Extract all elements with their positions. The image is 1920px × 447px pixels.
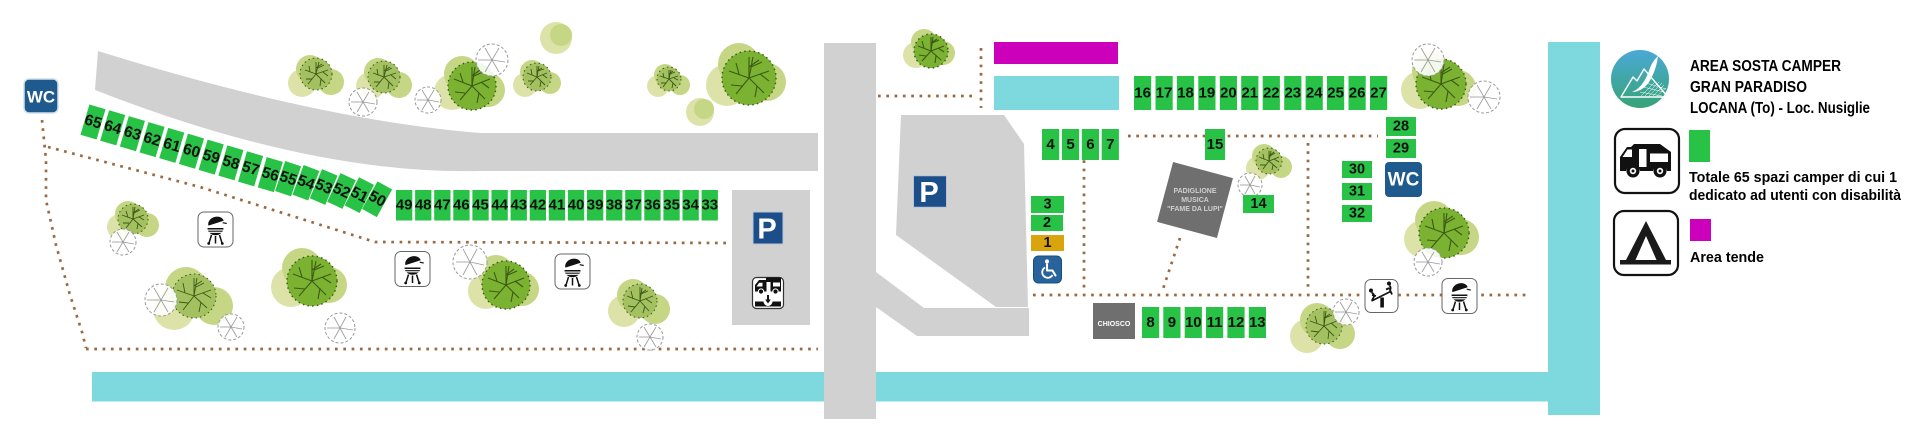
svg-text:CHIOSCO: CHIOSCO [1098,321,1131,328]
svg-text:48: 48 [415,197,432,214]
svg-text:46: 46 [453,197,470,214]
svg-text:8: 8 [1146,314,1154,331]
svg-text:47: 47 [434,197,451,214]
svg-text:19: 19 [1199,85,1216,102]
svg-text:"FAME DA LUPI": "FAME DA LUPI" [1167,206,1223,213]
svg-text:41: 41 [549,197,566,214]
svg-text:45: 45 [472,197,489,214]
svg-text:4: 4 [1046,136,1055,153]
svg-text:GRAN PARADISO: GRAN PARADISO [1690,79,1807,96]
svg-text:5: 5 [1066,136,1074,153]
svg-text:39: 39 [587,197,604,214]
svg-text:36: 36 [644,197,661,214]
svg-text:9: 9 [1168,314,1176,331]
svg-text:WC: WC [27,88,55,107]
svg-text:27: 27 [1370,85,1387,102]
svg-text:38: 38 [606,197,623,214]
svg-text:24: 24 [1306,85,1323,102]
svg-text:26: 26 [1349,85,1366,102]
svg-text:33: 33 [701,197,718,214]
svg-text:Totale 65 spazi camper di cui: Totale 65 spazi camper di cui 1 [1689,169,1897,186]
svg-text:18: 18 [1177,85,1194,102]
svg-text:29: 29 [1393,141,1409,157]
svg-text:7: 7 [1106,136,1114,153]
svg-text:40: 40 [568,197,585,214]
svg-text:17: 17 [1156,85,1173,102]
svg-text:12: 12 [1228,314,1245,331]
svg-text:14: 14 [1250,196,1266,212]
svg-text:32: 32 [1349,206,1365,222]
svg-text:1: 1 [1043,235,1051,251]
svg-text:20: 20 [1220,85,1237,102]
svg-text:P: P [919,177,938,209]
svg-text:43: 43 [510,197,527,214]
svg-text:11: 11 [1207,314,1223,331]
svg-text:34: 34 [682,197,699,214]
svg-text:21: 21 [1241,85,1258,102]
svg-text:Area tende: Area tende [1690,249,1764,266]
svg-text:13: 13 [1249,314,1266,331]
svg-text:3: 3 [1043,197,1051,213]
svg-text:MUSICA: MUSICA [1181,197,1209,204]
svg-text:49: 49 [396,197,413,214]
svg-text:28: 28 [1393,119,1409,135]
svg-text:10: 10 [1185,314,1202,331]
svg-text:P: P [757,214,776,246]
svg-text:23: 23 [1284,85,1301,102]
svg-text:35: 35 [663,197,680,214]
svg-text:15: 15 [1207,136,1224,153]
svg-text:AREA SOSTA CAMPER: AREA SOSTA CAMPER [1690,58,1841,75]
svg-text:44: 44 [491,197,508,214]
svg-text:PADIGLIONE: PADIGLIONE [1173,188,1216,195]
svg-text:6: 6 [1086,136,1094,153]
svg-text:22: 22 [1263,85,1280,102]
svg-text:LOCANA (To) - Loc. Nusiglie: LOCANA (To) - Loc. Nusiglie [1690,100,1870,117]
svg-text:WC: WC [1388,170,1420,191]
svg-text:25: 25 [1327,85,1344,102]
svg-text:37: 37 [625,197,642,214]
svg-text:30: 30 [1349,162,1365,178]
svg-text:16: 16 [1134,85,1151,102]
svg-text:42: 42 [530,197,547,214]
svg-text:31: 31 [1349,184,1365,200]
svg-text:dedicato ad utenti con disabil: dedicato ad utenti con disabilità [1689,187,1902,204]
svg-text:2: 2 [1043,215,1051,231]
